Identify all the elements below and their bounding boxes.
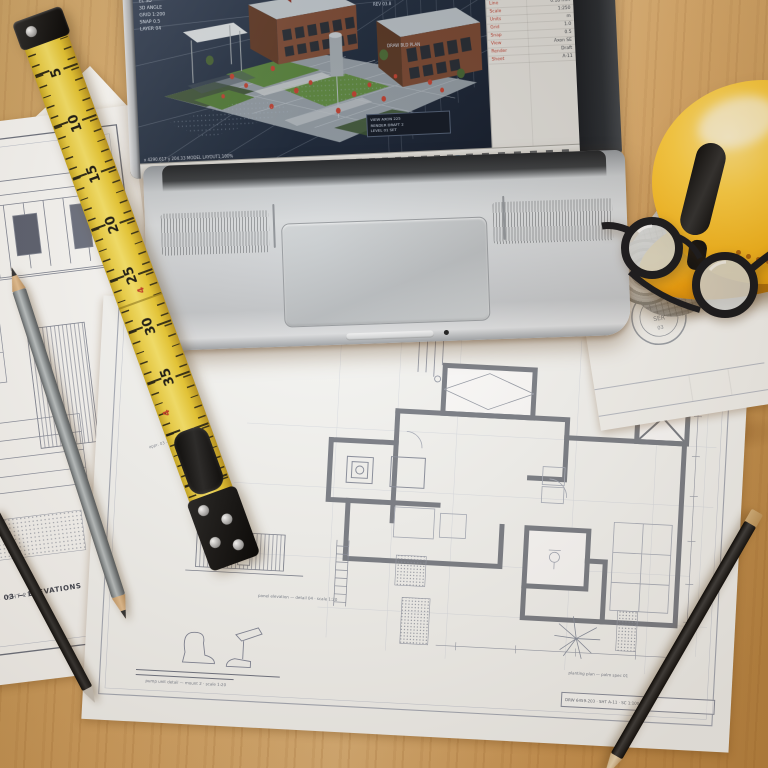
trackpad [281,216,491,327]
property-value: A-11 [562,54,572,60]
screen-right-bezel [571,0,622,159]
property-label: View [491,41,502,47]
front-dot [444,330,449,335]
hinge-clasp-left [272,204,276,248]
rivet [220,512,234,526]
rivet [24,25,38,39]
property-label: Snap [491,33,502,39]
eyeglasses [600,190,768,330]
rivet [196,504,210,518]
cad-properties-panel: A1 · Rev0n 1-2676/6456 Name A-201 Layer … [483,0,579,148]
property-label: Units [490,17,501,23]
property-label: Grid [490,25,499,31]
property-value: 0.5 [564,30,571,36]
speaker-grille-right [492,198,613,244]
rivet [208,535,222,549]
property-label: Sheet [492,57,505,63]
property-value: 1.0 [564,22,571,28]
cad-3d-model [132,0,492,164]
lid-open-notch [346,330,434,340]
cad-layer-hud: MODEL 8L05VIEW TRANSFORMEL 3D3D ANGLEGRI… [138,0,183,35]
property-value: Draft [561,46,572,52]
property-value: m [566,14,571,20]
cad-viewport: MODEL 8L05VIEW TRANSFORMEL 3D3D ANGLEGRI… [132,0,492,164]
architect-desk-scene: CAD SET 03 — ELEVATIONS SCALE 1:50 · SHT… [0,0,768,768]
property-value: 1:250 [558,6,571,12]
rivet [231,538,245,552]
laptop-base [143,150,631,352]
property-value: Axon SE [554,38,572,44]
viewport-note-box: VIEW AXON 225RENDER DRAFT 2LEVEL 01 SET [366,110,451,137]
property-value: 0.18 mm [550,0,570,4]
panel-rows: Name A-201 Layer 0 walls Color ByLayer L… [485,0,580,148]
property-label: Line [489,1,498,7]
title-block-text: DRW 6459-203 · SHT A-11 · SC 1:100 [565,697,640,706]
speaker-grille-left [161,210,270,256]
property-label: Render [491,49,507,55]
property-label: Scale [489,9,501,15]
